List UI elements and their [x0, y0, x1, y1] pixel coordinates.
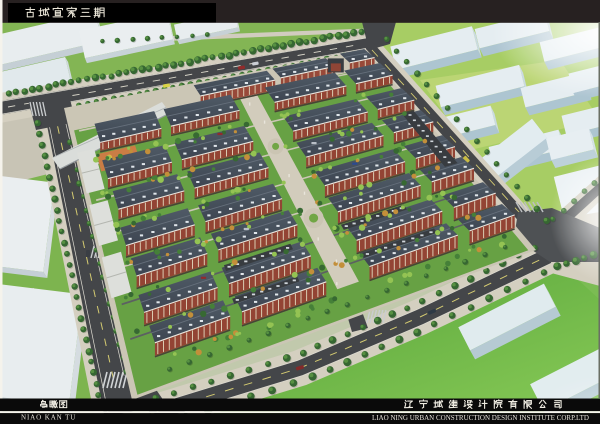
- svg-text:LIAO NING URBAN CONSTRUCTION D: LIAO NING URBAN CONSTRUCTION DESIGN INST…: [372, 414, 589, 422]
- svg-text:NIAO KAN TU: NIAO KAN TU: [21, 414, 76, 422]
